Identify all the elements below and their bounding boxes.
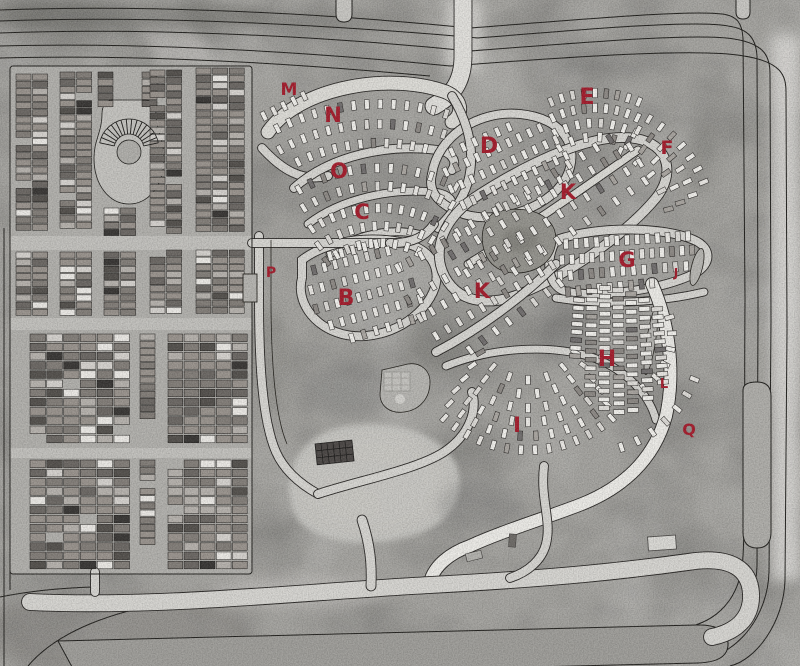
aerial-map: MNOCPBDEFKKGJHLQI (0, 0, 800, 666)
photo-grain-light (0, 0, 800, 666)
screenshot-root: MNOCPBDEFKKGJHLQI (0, 0, 800, 666)
